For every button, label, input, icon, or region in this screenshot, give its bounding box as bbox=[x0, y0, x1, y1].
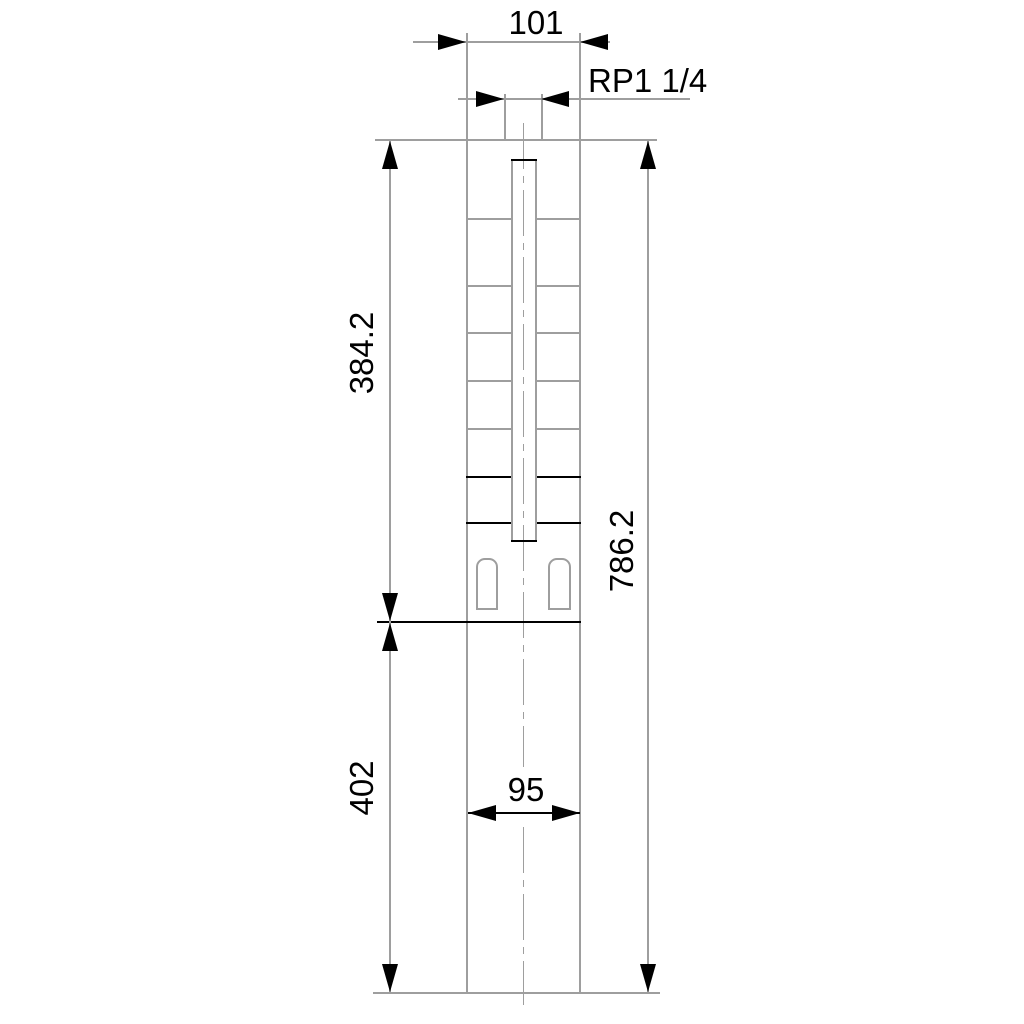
chamber-line bbox=[466, 522, 513, 524]
cable-guard-bottom-cap bbox=[511, 540, 537, 542]
suction-slot-right bbox=[548, 558, 571, 610]
chamber-line bbox=[536, 332, 581, 334]
dim-label-lower-length: 402 bbox=[345, 728, 379, 848]
dim-label-motor-width: 95 bbox=[486, 773, 566, 807]
centerline bbox=[523, 123, 524, 767]
dim-arrow-down-icon bbox=[640, 964, 656, 992]
chamber-line bbox=[466, 218, 513, 220]
dim-arrow-left-icon bbox=[468, 805, 496, 821]
centerline bbox=[523, 827, 524, 1005]
chamber-line bbox=[466, 380, 513, 382]
chamber-line bbox=[536, 380, 581, 382]
dim-label-total-length: 786.2 bbox=[605, 491, 639, 611]
dim-arrow-down-icon bbox=[382, 593, 398, 621]
dim-arrow-up-icon bbox=[382, 623, 398, 651]
chamber-line bbox=[536, 476, 581, 478]
dim-arrow-right-icon bbox=[552, 805, 580, 821]
chamber-line bbox=[466, 476, 513, 478]
body-left-edge bbox=[466, 33, 468, 993]
pump-dimension-drawing: 101 RP1 1/4 384.2 402 786.2 95 bbox=[0, 0, 1024, 1024]
cable-guard-right-edge bbox=[535, 159, 537, 542]
dim-arrow-right-icon bbox=[438, 34, 466, 50]
dim-arrow-up-icon bbox=[640, 141, 656, 169]
chamber-line bbox=[536, 522, 581, 524]
bottom-extension-line bbox=[373, 992, 660, 994]
chamber-line bbox=[466, 285, 513, 287]
top-extension-line bbox=[375, 139, 657, 141]
cable-guard-top-cap bbox=[511, 159, 537, 161]
dim-arrow-left-icon bbox=[541, 91, 569, 107]
dim-label-upper-length: 384.2 bbox=[345, 293, 379, 413]
chamber-line bbox=[536, 218, 581, 220]
dim-arrow-up-icon bbox=[382, 141, 398, 169]
thread-label: RP1 1/4 bbox=[588, 64, 707, 98]
dim-arrow-down-icon bbox=[382, 964, 398, 992]
chamber-line bbox=[536, 285, 581, 287]
dim-arrow-right-icon bbox=[476, 91, 504, 107]
dim-label-width-top: 101 bbox=[476, 6, 596, 40]
chamber-line bbox=[536, 428, 581, 430]
cable-guard-left-edge bbox=[511, 159, 513, 542]
dimension-line-right bbox=[647, 139, 649, 993]
chamber-line bbox=[466, 428, 513, 430]
suction-slot-left bbox=[476, 558, 498, 610]
port-stub-left bbox=[504, 94, 506, 141]
joint-extension-line bbox=[377, 621, 581, 623]
body-right-edge bbox=[579, 33, 581, 993]
dimension-line-left bbox=[389, 139, 391, 993]
chamber-line bbox=[466, 332, 513, 334]
